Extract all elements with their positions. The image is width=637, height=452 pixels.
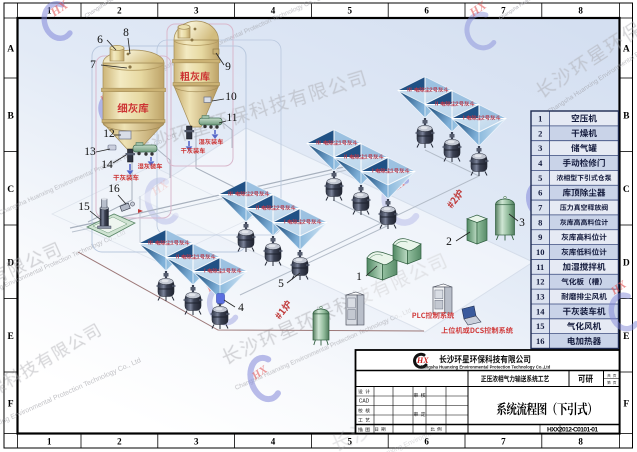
svg-text:2: 2 <box>250 192 253 198</box>
svg-text:E: E <box>8 332 14 342</box>
svg-text:2: 2 <box>429 88 432 94</box>
svg-text:1: 1 <box>223 269 226 275</box>
svg-text:6: 6 <box>538 188 542 198</box>
svg-text:13: 13 <box>84 146 96 158</box>
svg-text:1: 1 <box>391 169 394 175</box>
svg-text:A: A <box>623 45 630 55</box>
svg-text:5: 5 <box>348 6 353 16</box>
svg-text:CAD: CAD <box>359 398 370 404</box>
svg-text:15: 15 <box>78 201 90 213</box>
svg-text:1: 1 <box>47 437 52 447</box>
svg-text:3: 3 <box>538 143 542 153</box>
svg-text:6: 6 <box>424 6 429 16</box>
svg-text:12: 12 <box>536 277 545 287</box>
svg-text:A: A <box>7 45 14 55</box>
svg-text:10: 10 <box>536 247 545 257</box>
svg-text:9: 9 <box>225 61 231 73</box>
svg-text:8: 8 <box>538 217 542 227</box>
svg-text:III: III <box>148 241 153 247</box>
svg-text:B: B <box>8 111 15 121</box>
svg-text:8: 8 <box>123 27 129 39</box>
svg-text:13: 13 <box>536 292 545 302</box>
svg-text:2: 2 <box>446 236 452 248</box>
svg-text:11: 11 <box>536 262 544 272</box>
svg-text:2: 2 <box>456 102 459 108</box>
svg-text:1: 1 <box>338 141 341 147</box>
svg-text:C: C <box>7 185 14 195</box>
svg-text:2: 2 <box>482 116 485 122</box>
svg-text:14: 14 <box>536 306 545 316</box>
svg-text:12: 12 <box>103 128 115 140</box>
svg-text:6: 6 <box>97 34 103 46</box>
svg-text:D: D <box>623 258 630 268</box>
svg-text:C: C <box>623 185 630 195</box>
svg-text:3: 3 <box>194 6 199 16</box>
svg-text:11: 11 <box>226 112 237 124</box>
svg-text:16: 16 <box>108 183 120 195</box>
svg-text:III: III <box>228 192 233 198</box>
svg-text:3: 3 <box>194 437 199 447</box>
svg-text:II: II <box>176 255 180 261</box>
svg-text:15: 15 <box>536 321 545 331</box>
svg-text:1: 1 <box>197 255 200 261</box>
svg-text:2: 2 <box>277 206 280 212</box>
svg-text:Changsha Huanxing Environmenta: Changsha Huanxing Environmental Protecti… <box>418 365 551 370</box>
svg-text:III: III <box>407 88 412 94</box>
svg-text:III: III <box>316 141 321 147</box>
svg-text:16: 16 <box>536 336 545 346</box>
svg-text:2: 2 <box>538 128 542 138</box>
svg-text:14: 14 <box>101 159 113 171</box>
svg-text:E: E <box>623 332 629 342</box>
svg-text:II: II <box>344 155 348 161</box>
svg-text:II: II <box>256 206 260 212</box>
svg-text:B: B <box>623 111 630 121</box>
svg-text:2: 2 <box>117 6 122 16</box>
svg-text:1: 1 <box>356 271 362 283</box>
svg-text:2: 2 <box>117 437 122 447</box>
svg-text:10: 10 <box>225 91 237 103</box>
svg-text:9: 9 <box>538 232 542 242</box>
svg-text:8: 8 <box>578 6 583 16</box>
svg-text:3: 3 <box>519 217 525 229</box>
svg-text:5: 5 <box>278 278 284 290</box>
svg-text:2: 2 <box>303 220 306 226</box>
svg-text:F: F <box>8 399 14 409</box>
svg-text:7: 7 <box>501 437 506 447</box>
svg-text:8: 8 <box>578 437 583 447</box>
svg-text:1: 1 <box>538 113 542 123</box>
svg-text:1: 1 <box>170 241 173 247</box>
svg-text:F: F <box>623 399 629 409</box>
svg-text:4: 4 <box>238 302 244 314</box>
svg-text:II: II <box>435 102 439 108</box>
svg-text:5: 5 <box>538 173 542 183</box>
svg-text:4: 4 <box>271 437 276 447</box>
svg-text:1: 1 <box>365 155 368 161</box>
svg-text:HXX2012-C0101-01: HXX2012-C0101-01 <box>547 427 598 434</box>
svg-text:7: 7 <box>90 59 96 71</box>
